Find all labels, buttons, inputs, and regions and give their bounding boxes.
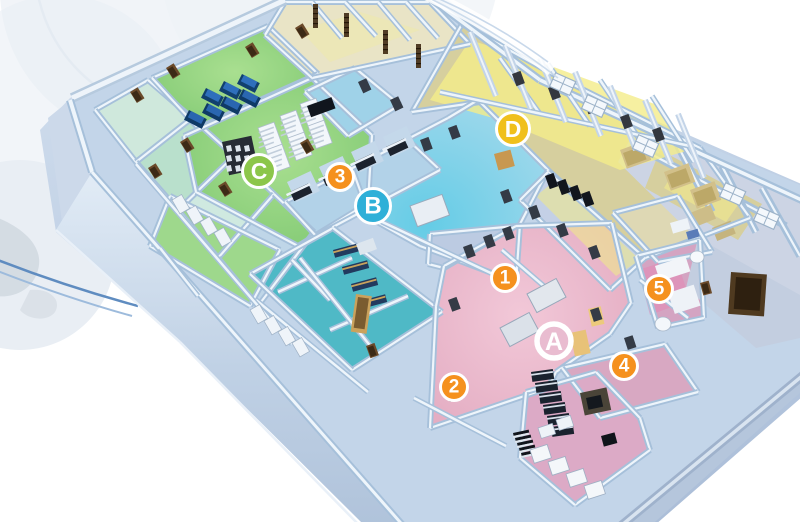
svg-text:A: A xyxy=(545,328,563,356)
svg-text:C: C xyxy=(251,158,268,184)
svg-text:5: 5 xyxy=(654,279,665,300)
svg-text:4: 4 xyxy=(619,356,630,377)
svg-text:2: 2 xyxy=(449,377,460,398)
svg-text:1: 1 xyxy=(500,268,511,289)
svg-text:3: 3 xyxy=(335,167,346,188)
svg-text:B: B xyxy=(364,193,381,220)
svg-text:D: D xyxy=(505,116,522,142)
